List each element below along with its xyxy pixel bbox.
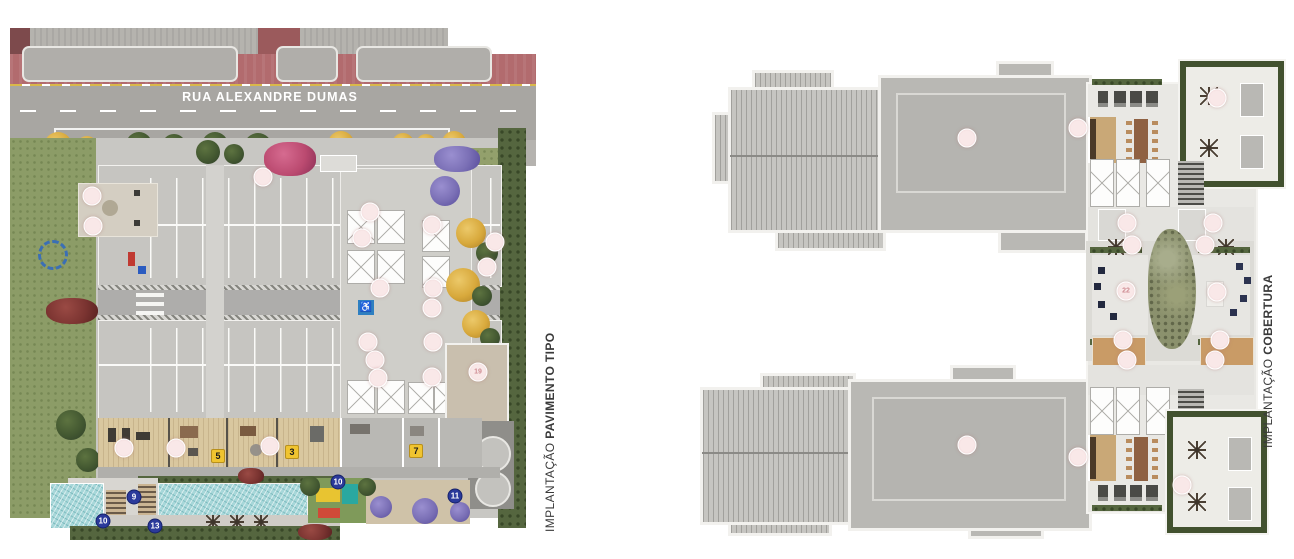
pink-marker	[366, 351, 385, 370]
pink-marker	[361, 203, 380, 222]
pink-marker	[254, 168, 273, 187]
pink-marker	[423, 299, 442, 318]
caption-bold: PAVIMENTO TIPO	[543, 332, 557, 438]
pink-marker	[1118, 214, 1137, 233]
pink-marker	[371, 279, 390, 298]
pink-marker	[115, 439, 134, 458]
pink-marker	[478, 258, 497, 277]
pink-marker	[1208, 283, 1227, 302]
pink-marker	[423, 216, 442, 235]
pink-marker	[353, 229, 372, 248]
caption-pavimento-tipo: IMPLANTAÇÃO PAVIMENTO TIPO	[543, 332, 557, 532]
caption-regular: IMPLANTAÇÃO	[543, 442, 557, 532]
page: RUA ALEXANDRE DUMAS	[0, 0, 1294, 559]
pink-marker: 19	[469, 363, 488, 382]
red-bush	[298, 524, 332, 540]
blue-marker: 10	[331, 475, 346, 490]
blue-marker: 13	[148, 519, 163, 534]
pink-marker	[1069, 448, 1088, 467]
pink-marker	[958, 436, 977, 455]
pink-marker: 22	[1117, 282, 1136, 301]
yellow-marker: 7	[409, 444, 423, 458]
yellow-marker: 5	[211, 449, 225, 463]
blue-marker: 9	[127, 490, 142, 505]
pink-marker	[83, 187, 102, 206]
pink-marker	[1208, 89, 1227, 108]
blue-marker: 11	[448, 489, 463, 504]
pink-marker	[424, 279, 443, 298]
pink-marker	[167, 439, 186, 458]
pink-marker	[486, 233, 505, 252]
pink-marker	[423, 368, 442, 387]
pink-marker	[1173, 476, 1192, 495]
pink-marker	[1114, 331, 1133, 350]
pink-marker	[84, 217, 103, 236]
pink-marker	[261, 437, 280, 456]
roof-plan-cobertura: 22	[700, 57, 1285, 535]
pink-marker	[958, 129, 977, 148]
pink-marker	[1123, 236, 1142, 255]
pink-marker	[1206, 351, 1225, 370]
pink-marker	[1069, 119, 1088, 138]
site-plan-pavimento-tipo: RUA ALEXANDRE DUMAS	[10, 28, 536, 518]
pink-marker	[1118, 351, 1137, 370]
blue-marker: 10	[96, 514, 111, 529]
pink-marker	[369, 369, 388, 388]
caption-cobertura: IMPLANTAÇÃO COBERTURA	[1261, 274, 1275, 448]
markers-layer: 22	[700, 57, 1285, 535]
pink-marker	[1204, 214, 1223, 233]
pink-marker	[359, 333, 378, 352]
pink-marker	[1211, 331, 1230, 350]
pink-marker	[1196, 236, 1215, 255]
yellow-marker: 3	[285, 445, 299, 459]
caption-regular: IMPLANTAÇÃO	[1261, 358, 1275, 448]
caption-bold: COBERTURA	[1261, 274, 1275, 354]
pink-marker	[424, 333, 443, 352]
